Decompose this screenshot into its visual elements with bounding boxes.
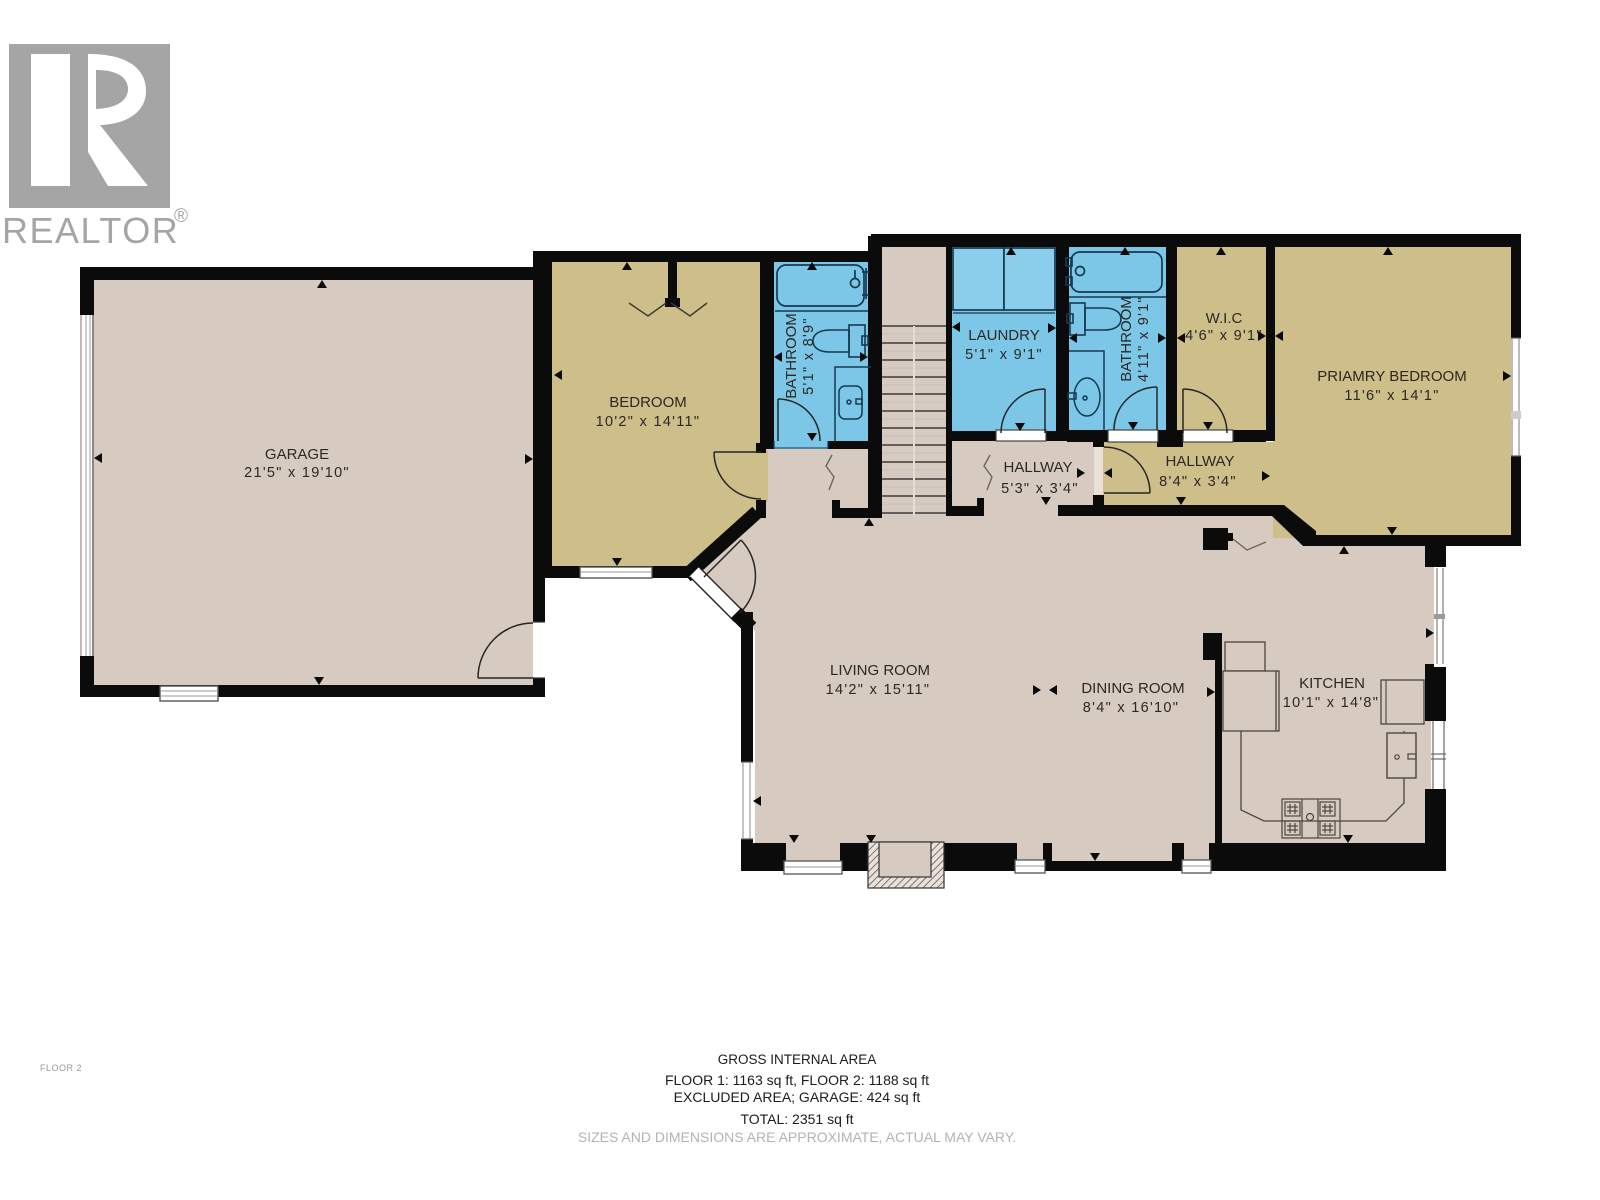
svg-text:8'4" x 16'10": 8'4" x 16'10" — [1083, 700, 1179, 716]
svg-text:4'6" x 9'1": 4'6" x 9'1" — [1185, 328, 1263, 344]
svg-text:DINING ROOM: DINING ROOM — [1081, 680, 1184, 697]
svg-text:5'3" x 3'4": 5'3" x 3'4" — [1001, 481, 1079, 497]
svg-text:®: ® — [174, 206, 188, 227]
svg-text:W.I.C: W.I.C — [1206, 310, 1243, 327]
svg-text:KITCHEN: KITCHEN — [1299, 675, 1365, 692]
svg-text:FLOOR 2: FLOOR 2 — [40, 1063, 82, 1073]
svg-text:8'4" x 3'4": 8'4" x 3'4" — [1159, 474, 1237, 490]
svg-text:BATHROOM: BATHROOM — [783, 313, 800, 399]
svg-text:14'2" x 15'11": 14'2" x 15'11" — [826, 682, 931, 698]
svg-text:PRIAMRY BEDROOM: PRIAMRY BEDROOM — [1317, 368, 1466, 385]
svg-text:GARAGE: GARAGE — [265, 446, 329, 463]
svg-text:HALLWAY: HALLWAY — [1004, 459, 1073, 476]
svg-text:TOTAL: 2351 sq ft: TOTAL: 2351 sq ft — [740, 1111, 853, 1127]
svg-text:SIZES AND DIMENSIONS ARE APPRO: SIZES AND DIMENSIONS ARE APPROXIMATE, AC… — [578, 1129, 1016, 1145]
svg-text:21'5" x 19'10": 21'5" x 19'10" — [244, 465, 350, 481]
svg-text:5'1" x 8'9": 5'1" x 8'9" — [801, 317, 817, 395]
svg-text:GROSS INTERNAL AREA: GROSS INTERNAL AREA — [718, 1052, 877, 1067]
svg-text:BEDROOM: BEDROOM — [609, 394, 687, 411]
svg-text:EXCLUDED AREA; GARAGE: 424 sq: EXCLUDED AREA; GARAGE: 424 sq ft — [674, 1089, 921, 1105]
svg-text:5'1" x 9'1": 5'1" x 9'1" — [965, 347, 1043, 363]
svg-text:HALLWAY: HALLWAY — [1166, 453, 1235, 470]
svg-text:FLOOR 1: 1163 sq ft, FLOOR 2:: FLOOR 1: 1163 sq ft, FLOOR 2: 1188 sq ft — [665, 1072, 929, 1088]
svg-text:BATHROOM: BATHROOM — [1118, 296, 1135, 382]
svg-text:LIVING ROOM: LIVING ROOM — [830, 662, 930, 679]
svg-text:11'6" x 14'1": 11'6" x 14'1" — [1344, 388, 1439, 404]
svg-text:4'11" x 9'1": 4'11" x 9'1" — [1136, 296, 1152, 382]
svg-text:LAUNDRY: LAUNDRY — [968, 327, 1039, 344]
svg-text:REALTOR: REALTOR — [2, 210, 179, 251]
svg-text:10'2" x 14'11": 10'2" x 14'11" — [596, 414, 701, 430]
svg-text:10'1" x 14'8": 10'1" x 14'8" — [1283, 695, 1379, 711]
